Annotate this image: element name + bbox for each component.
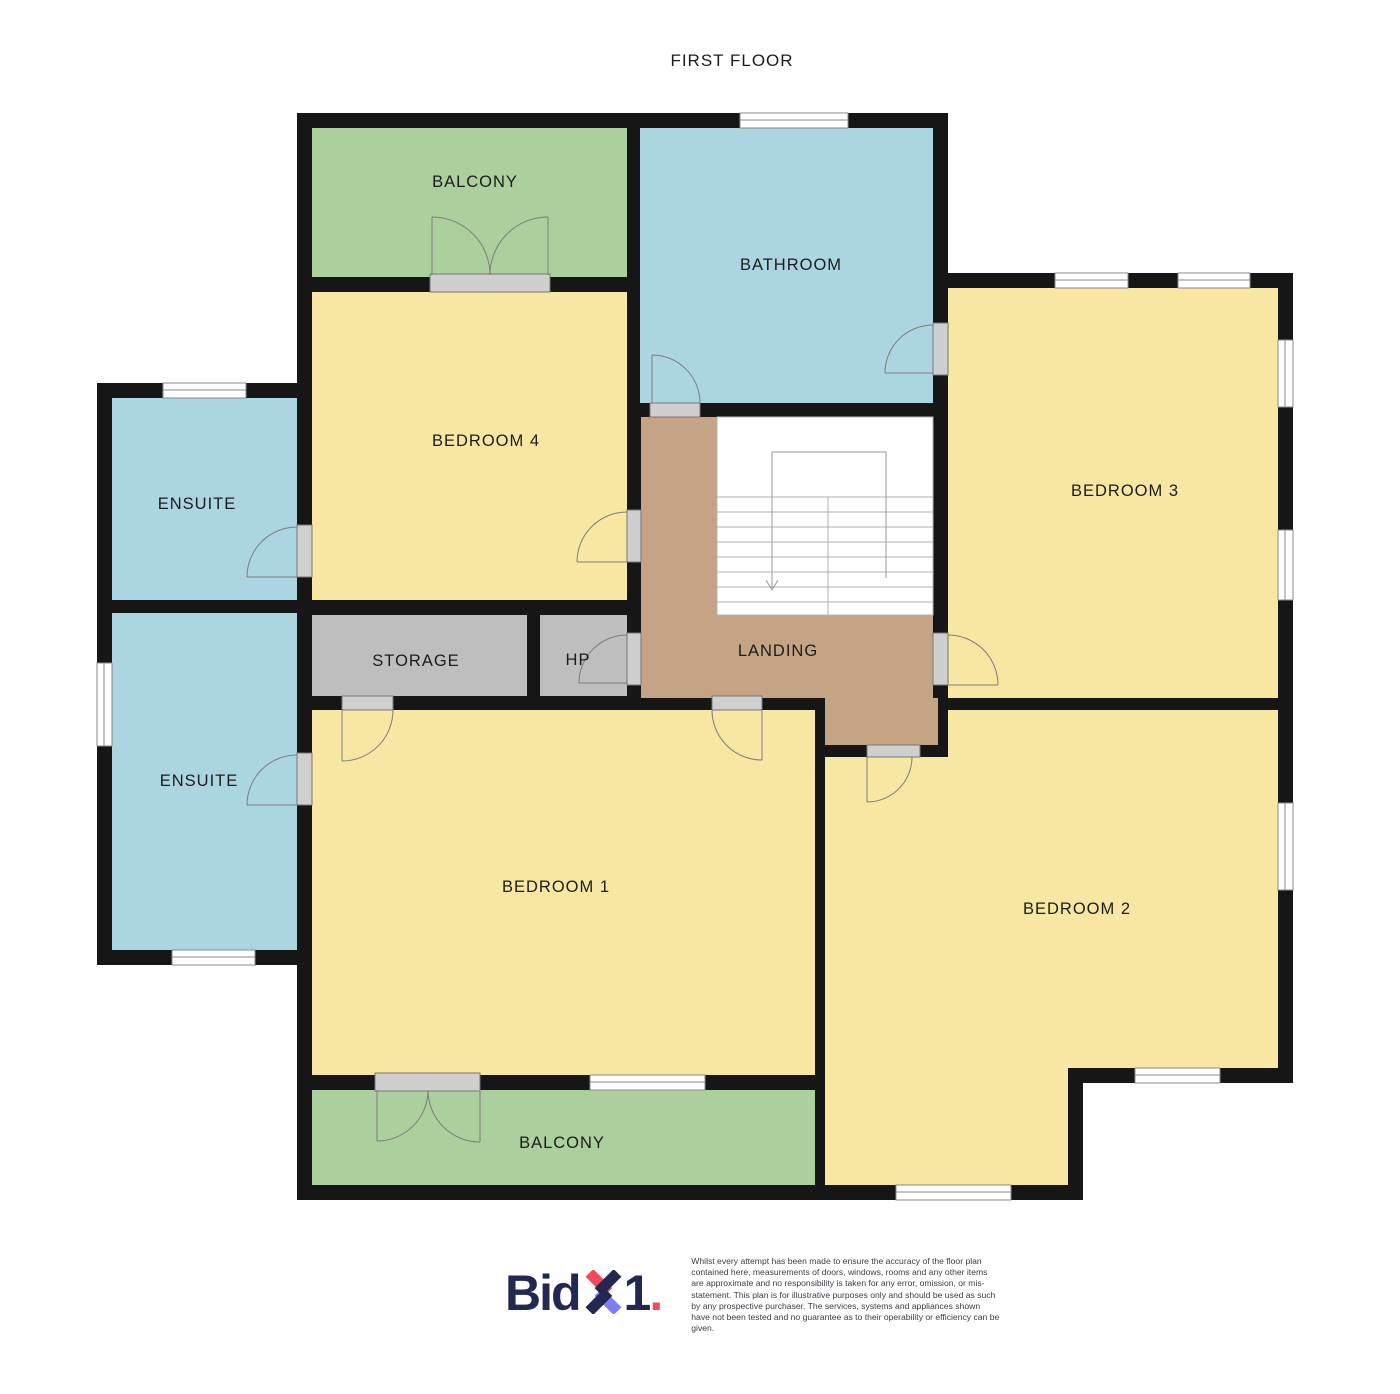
threshold-bedroom2-door xyxy=(867,745,920,757)
threshold-storage-door xyxy=(342,696,393,710)
label-bedroom-4: BEDROOM 4 xyxy=(432,432,540,450)
label-bedroom-2: BEDROOM 2 xyxy=(1023,900,1131,918)
wall-notch-right xyxy=(938,698,948,757)
threshold-ensuite-bottom-door xyxy=(297,753,312,805)
window-ensuite-top xyxy=(163,383,246,398)
threshold-bathroom-bed3-door xyxy=(933,323,948,375)
floor-plan: FIRST FLOOR xyxy=(0,0,1400,1389)
label-bathroom: BATHROOM xyxy=(740,256,842,274)
room-bedroom-2-lower xyxy=(825,710,1068,1185)
window-ensuite-bottom xyxy=(172,950,255,965)
page-title: FIRST FLOOR xyxy=(670,51,793,70)
logo-x-icon xyxy=(583,1270,623,1318)
window-bedroom1-balcony xyxy=(590,1075,705,1090)
window-bedroom3-top-b xyxy=(1178,273,1250,288)
room-balcony-top xyxy=(312,128,627,277)
threshold-hp-door xyxy=(627,633,641,685)
label-storage: STORAGE xyxy=(372,652,459,670)
window-ensuite-left xyxy=(97,663,112,746)
window-bedroom2-bottom-left xyxy=(896,1185,1011,1200)
window-bedroom2-right xyxy=(1278,803,1293,890)
label-landing: LANDING xyxy=(738,642,818,660)
threshold-balcony-bottom-doors xyxy=(375,1073,480,1091)
window-bedroom3-top-a xyxy=(1055,273,1128,288)
disclaimer-text: Whilst every attempt has been made to en… xyxy=(691,1256,999,1334)
window-bedroom3-right-a xyxy=(1278,340,1293,407)
label-balcony-top: BALCONY xyxy=(432,173,518,191)
logo-dot: . xyxy=(649,1268,663,1318)
stairwell xyxy=(717,417,933,615)
threshold-bedroom3-door xyxy=(933,633,948,685)
window-bedroom3-right-b xyxy=(1278,530,1293,600)
footer: Bid 1 . Whilst every attempt has been ma… xyxy=(505,1256,1065,1334)
label-bedroom-3: BEDROOM 3 xyxy=(1071,482,1179,500)
window-bedroom2-bottom-right xyxy=(1135,1068,1220,1083)
threshold-bedroom4-door xyxy=(627,510,641,562)
window-bathroom-top xyxy=(740,113,848,128)
threshold-bedroom1-door xyxy=(712,696,762,710)
label-ensuite-top: ENSUITE xyxy=(158,495,237,513)
threshold-ensuite-top-door xyxy=(297,525,312,577)
logo-one-text: 1 xyxy=(624,1268,650,1318)
floor-plan-svg: FIRST FLOOR xyxy=(0,0,1400,1389)
label-hp: HP xyxy=(566,651,591,669)
logo-bid-text: Bid xyxy=(505,1268,580,1318)
threshold-bathroom-door xyxy=(650,403,700,417)
label-balcony-bottom: BALCONY xyxy=(519,1134,605,1152)
room-landing-notch xyxy=(825,698,938,745)
label-bedroom-1: BEDROOM 1 xyxy=(502,878,610,896)
bidx1-logo: Bid 1 . xyxy=(505,1268,663,1318)
staircase xyxy=(717,417,933,615)
threshold-balcony-top-doors xyxy=(430,274,550,292)
label-ensuite-bottom: ENSUITE xyxy=(160,772,239,790)
